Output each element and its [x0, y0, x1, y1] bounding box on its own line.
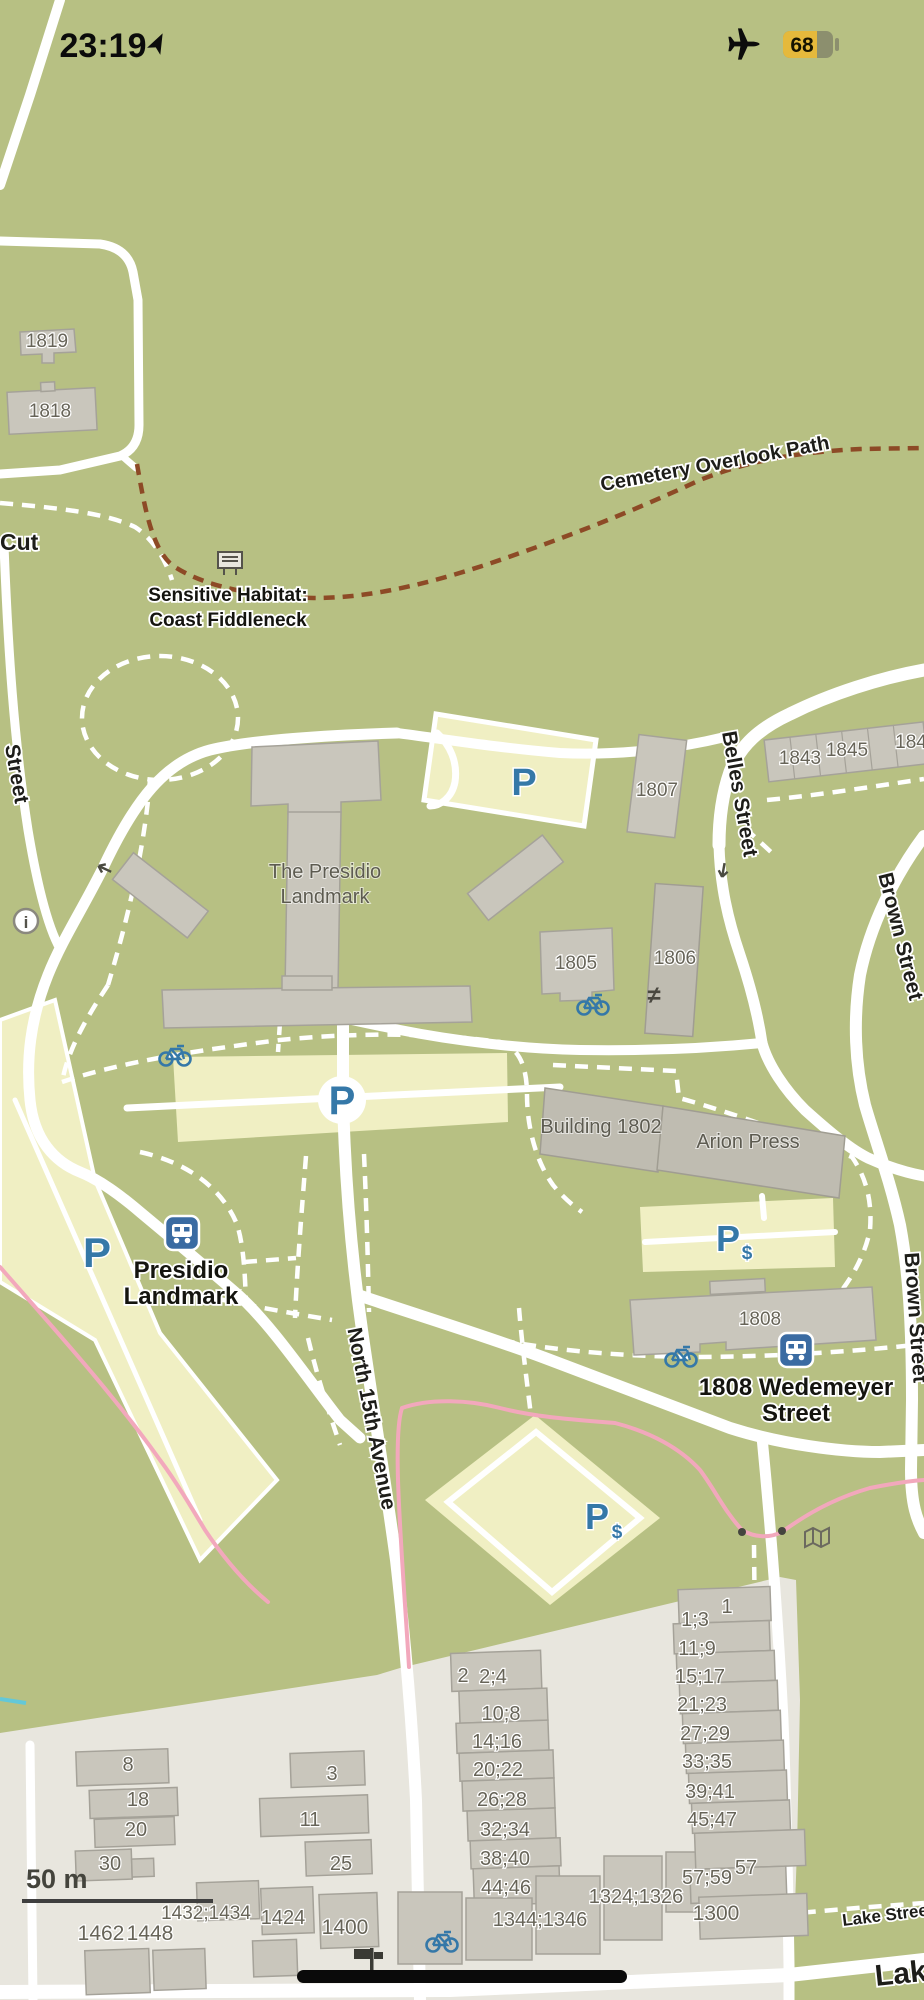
building-label: 11: [300, 1809, 321, 1831]
building-label: 1805: [555, 953, 597, 974]
building-label: 27;29: [680, 1723, 730, 1745]
habitat-label: Sensitive Habitat:: [148, 585, 307, 606]
building-label: 1806: [654, 948, 696, 969]
bus-stop-label-presidio[interactable]: Presidio: [134, 1257, 229, 1284]
building-label: 184: [895, 732, 924, 753]
building-label: 1462: [78, 1922, 125, 1945]
building-label: 1818: [29, 401, 71, 422]
bus-stop-label-presidio[interactable]: Landmark: [124, 1283, 239, 1310]
gate-symbol: ≠: [647, 982, 660, 1009]
building-label: 26;28: [477, 1789, 527, 1811]
status-time: 23:19: [60, 27, 147, 65]
building-label: 33;35: [682, 1751, 732, 1773]
battery-percent: 68: [790, 34, 814, 57]
map-canvas[interactable]: i P P P P $ P $ ≠ Cut Street Cemetery Ov…: [0, 0, 924, 2000]
building-label: 15;17: [675, 1666, 725, 1688]
svg-text:$: $: [742, 1243, 753, 1264]
parking-icon[interactable]: P: [329, 1079, 356, 1123]
building-label: 2;4: [479, 1666, 507, 1688]
street-label-cut: Cut: [0, 529, 39, 555]
building-label: 39;41: [685, 1781, 735, 1803]
building-label: 1400: [322, 1916, 369, 1939]
building-label: 3: [326, 1763, 337, 1785]
building-label: 1: [721, 1596, 732, 1618]
landmark-building-label: The Presidio: [269, 861, 381, 883]
building-label: 1819: [26, 331, 68, 352]
building-label: 57;59: [682, 1867, 732, 1889]
building-label: 30: [99, 1853, 121, 1875]
building-label: 8: [122, 1754, 133, 1776]
building-label: 21;23: [677, 1694, 727, 1716]
building-label: 1845: [826, 740, 868, 761]
battery-icon: 68: [783, 31, 839, 58]
parking-icon[interactable]: P: [511, 762, 536, 804]
street-label-lake-large: Lake: [873, 1953, 924, 1993]
building-label: 1324;1326: [589, 1886, 684, 1908]
building-label: 20;22: [473, 1759, 523, 1781]
info-icon[interactable]: i: [14, 909, 38, 933]
building-label: 11;9: [678, 1638, 715, 1660]
svg-text:$: $: [612, 1522, 623, 1543]
building-label: 44;46: [481, 1877, 531, 1899]
building-label: 10;8: [482, 1703, 521, 1725]
building-label: 45;47: [687, 1809, 737, 1831]
building-label: 1843: [779, 748, 821, 769]
home-indicator[interactable]: [297, 1970, 627, 1983]
route-node-dot: [738, 1528, 746, 1536]
building-label: 1448: [127, 1922, 174, 1945]
building-label: 1808: [739, 1309, 781, 1330]
bus-stop-icon-presidio[interactable]: [165, 1216, 199, 1250]
building-label: 1432;1434: [161, 1903, 251, 1924]
building-label: 25: [330, 1853, 352, 1875]
route-node-dot: [778, 1527, 786, 1535]
building-label: 38;40: [480, 1848, 530, 1870]
building-label: 20: [125, 1819, 147, 1841]
building-label: 1344;1346: [493, 1909, 588, 1931]
parking-icon[interactable]: P: [83, 1229, 111, 1276]
building-label: 14;16: [472, 1731, 522, 1753]
building-label: 1424: [261, 1907, 306, 1929]
building-label: 1300: [693, 1902, 740, 1925]
building-label: 18: [127, 1789, 149, 1811]
bus-stop-icon-wedemeyer[interactable]: [779, 1333, 813, 1367]
building-label: 2: [457, 1665, 468, 1687]
building-label: 1807: [636, 780, 678, 801]
svg-text:i: i: [24, 913, 29, 932]
bus-stop-label-wedemeyer[interactable]: 1808 Wedemeyer: [699, 1374, 893, 1401]
bus-stop-label-wedemeyer[interactable]: Street: [762, 1400, 830, 1427]
svg-text:P: P: [716, 1218, 740, 1259]
habitat-label: Coast Fiddleneck: [149, 610, 307, 631]
building-1802-label: Building 1802: [540, 1116, 661, 1138]
map-screen: i P P P P $ P $ ≠ Cut Street Cemetery Ov…: [0, 0, 924, 2000]
building-label: 1;3: [681, 1609, 709, 1631]
building-label: 57: [735, 1857, 757, 1879]
svg-text:P: P: [585, 1496, 609, 1537]
arion-press-label: Arion Press: [696, 1131, 799, 1153]
scale-label: 50 m: [26, 1864, 88, 1894]
landmark-building-label: Landmark: [281, 886, 371, 908]
building-label: 32;34: [480, 1819, 530, 1841]
